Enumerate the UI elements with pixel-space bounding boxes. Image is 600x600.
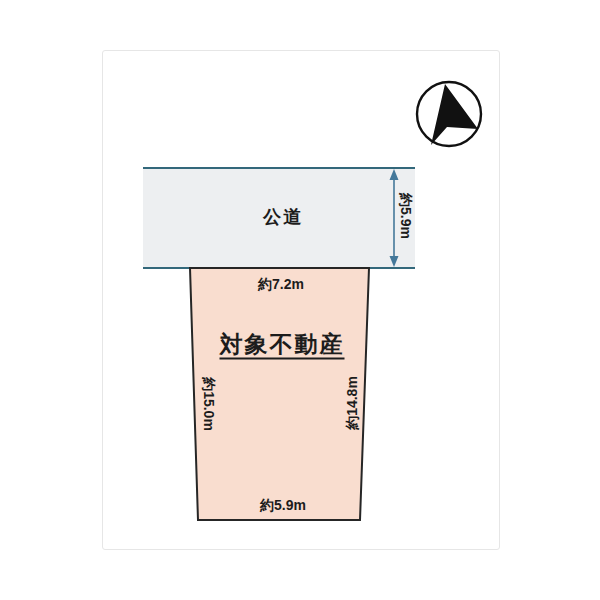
- road-width-label: 約5.9m: [399, 193, 413, 239]
- plot-diagram-page: 公道 約5.9m 約7.2m 対象不動産 約15.0m 約14.8m 約5.9m: [0, 0, 600, 600]
- road-label: 公道: [263, 208, 303, 226]
- north-arrow-icon: [417, 82, 481, 146]
- lot-top-dimension-label: 約7.2m: [258, 277, 304, 291]
- lot-right-dimension-label: 約14.8m: [345, 376, 359, 430]
- lot-bottom-dimension-label: 約5.9m: [260, 498, 306, 512]
- lot-left-dimension-label: 約15.0m: [202, 377, 216, 431]
- subject-property-title: 対象不動産: [220, 333, 345, 360]
